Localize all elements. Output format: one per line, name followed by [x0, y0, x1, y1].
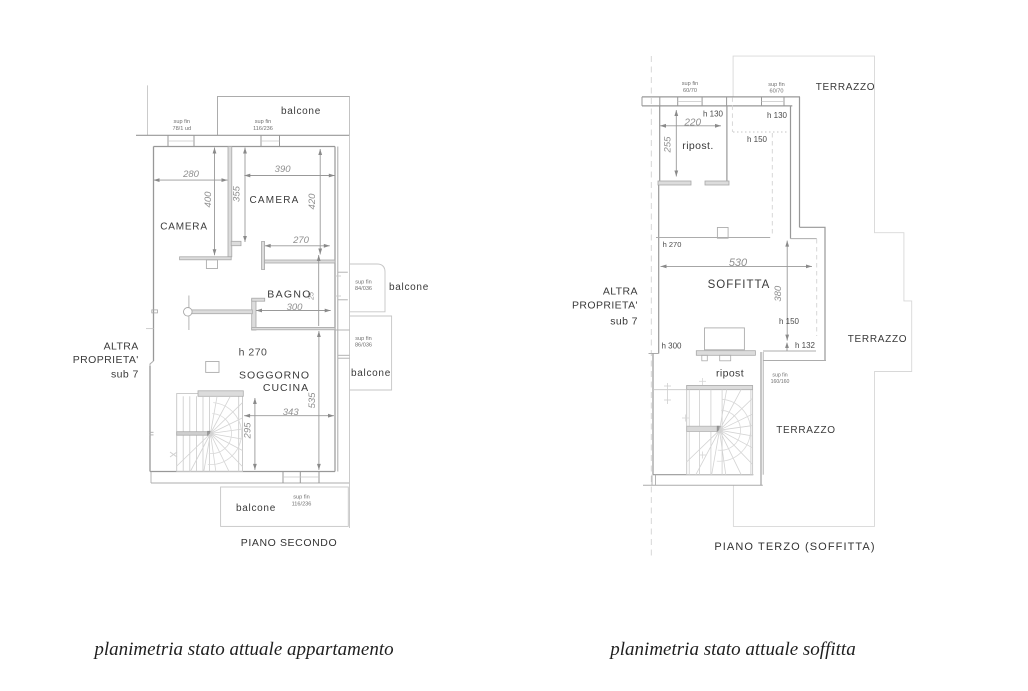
- svg-text:280: 280: [182, 169, 200, 180]
- svg-text:CAMERA: CAMERA: [250, 195, 300, 206]
- svg-text:255: 255: [662, 136, 673, 154]
- svg-text:balcone: balcone: [351, 368, 391, 379]
- svg-text:380: 380: [773, 285, 784, 302]
- svg-text:60/70: 60/70: [683, 88, 697, 94]
- svg-text:sup fin: sup fin: [772, 373, 787, 379]
- svg-text:PROPRIETA': PROPRIETA': [73, 354, 139, 366]
- svg-text:ALTRA: ALTRA: [104, 341, 139, 353]
- svg-text:h 300: h 300: [661, 342, 682, 351]
- svg-text:SOGGORNO: SOGGORNO: [239, 370, 310, 382]
- svg-text:sup fin: sup fin: [355, 336, 371, 342]
- svg-text:ripost: ripost: [716, 368, 744, 380]
- svg-text:TERRAZZO: TERRAZZO: [816, 82, 876, 93]
- svg-text:78/1 ud: 78/1 ud: [172, 126, 191, 132]
- svg-text:400: 400: [203, 191, 214, 208]
- svg-text:SOFFITTA: SOFFITTA: [708, 279, 771, 291]
- svg-text:sup fin: sup fin: [768, 82, 784, 88]
- svg-text:343: 343: [283, 407, 300, 418]
- svg-text:h 150: h 150: [747, 135, 768, 144]
- svg-text:sup fin: sup fin: [174, 119, 190, 125]
- svg-text:160/160: 160/160: [771, 379, 790, 385]
- svg-text:270: 270: [292, 235, 310, 246]
- svg-text:h 132: h 132: [795, 341, 816, 350]
- svg-text:300: 300: [287, 302, 304, 313]
- svg-text:535: 535: [307, 392, 318, 409]
- svg-text:sup fin: sup fin: [255, 119, 271, 125]
- svg-text:116/236: 116/236: [253, 126, 273, 132]
- svg-text:h 270: h 270: [663, 240, 682, 249]
- svg-text:PIANO SECONDO: PIANO SECONDO: [241, 537, 337, 549]
- svg-text:sub 7: sub 7: [111, 369, 139, 381]
- svg-text:84/036: 84/036: [355, 286, 372, 292]
- svg-text:h 130: h 130: [703, 109, 724, 118]
- svg-text:sup fin: sup fin: [293, 495, 309, 501]
- svg-text:ripost.: ripost.: [682, 140, 713, 152]
- svg-text:CUCINA: CUCINA: [263, 382, 309, 394]
- svg-text:60/70: 60/70: [770, 89, 784, 95]
- svg-text:balcone: balcone: [236, 503, 276, 514]
- svg-text:420: 420: [307, 193, 318, 210]
- svg-text:530: 530: [729, 257, 748, 269]
- svg-text:TERRAZZO: TERRAZZO: [776, 425, 836, 436]
- svg-text:BAGNO: BAGNO: [267, 289, 311, 301]
- svg-text:sub 7: sub 7: [610, 316, 638, 328]
- svg-text:h 130: h 130: [767, 111, 788, 120]
- svg-text:CAMERA: CAMERA: [160, 222, 208, 233]
- svg-text:PROPRIETA': PROPRIETA': [572, 300, 638, 312]
- svg-text:295: 295: [242, 422, 253, 440]
- svg-text:planimetria stato attuale appa: planimetria stato attuale appartamento: [92, 639, 393, 660]
- svg-text:PIANO TERZO (SOFFITTA): PIANO TERZO (SOFFITTA): [714, 541, 875, 553]
- svg-text:TERRAZZO: TERRAZZO: [848, 334, 908, 345]
- svg-text:sup fin: sup fin: [682, 81, 698, 87]
- svg-text:116/236: 116/236: [292, 501, 312, 507]
- svg-text:h 270: h 270: [239, 347, 268, 359]
- svg-text:ALTRA: ALTRA: [603, 286, 638, 298]
- svg-text:sup fin: sup fin: [355, 280, 371, 286]
- svg-text:balcone: balcone: [389, 282, 429, 293]
- svg-text:balcone: balcone: [281, 106, 321, 117]
- svg-text:planimetria stato attuale soff: planimetria stato attuale soffitta: [608, 639, 855, 660]
- svg-text:355: 355: [232, 185, 243, 202]
- svg-text:390: 390: [275, 164, 292, 175]
- svg-text:h 150: h 150: [779, 317, 800, 326]
- svg-text:220: 220: [683, 118, 701, 129]
- svg-text:86/036: 86/036: [355, 343, 372, 349]
